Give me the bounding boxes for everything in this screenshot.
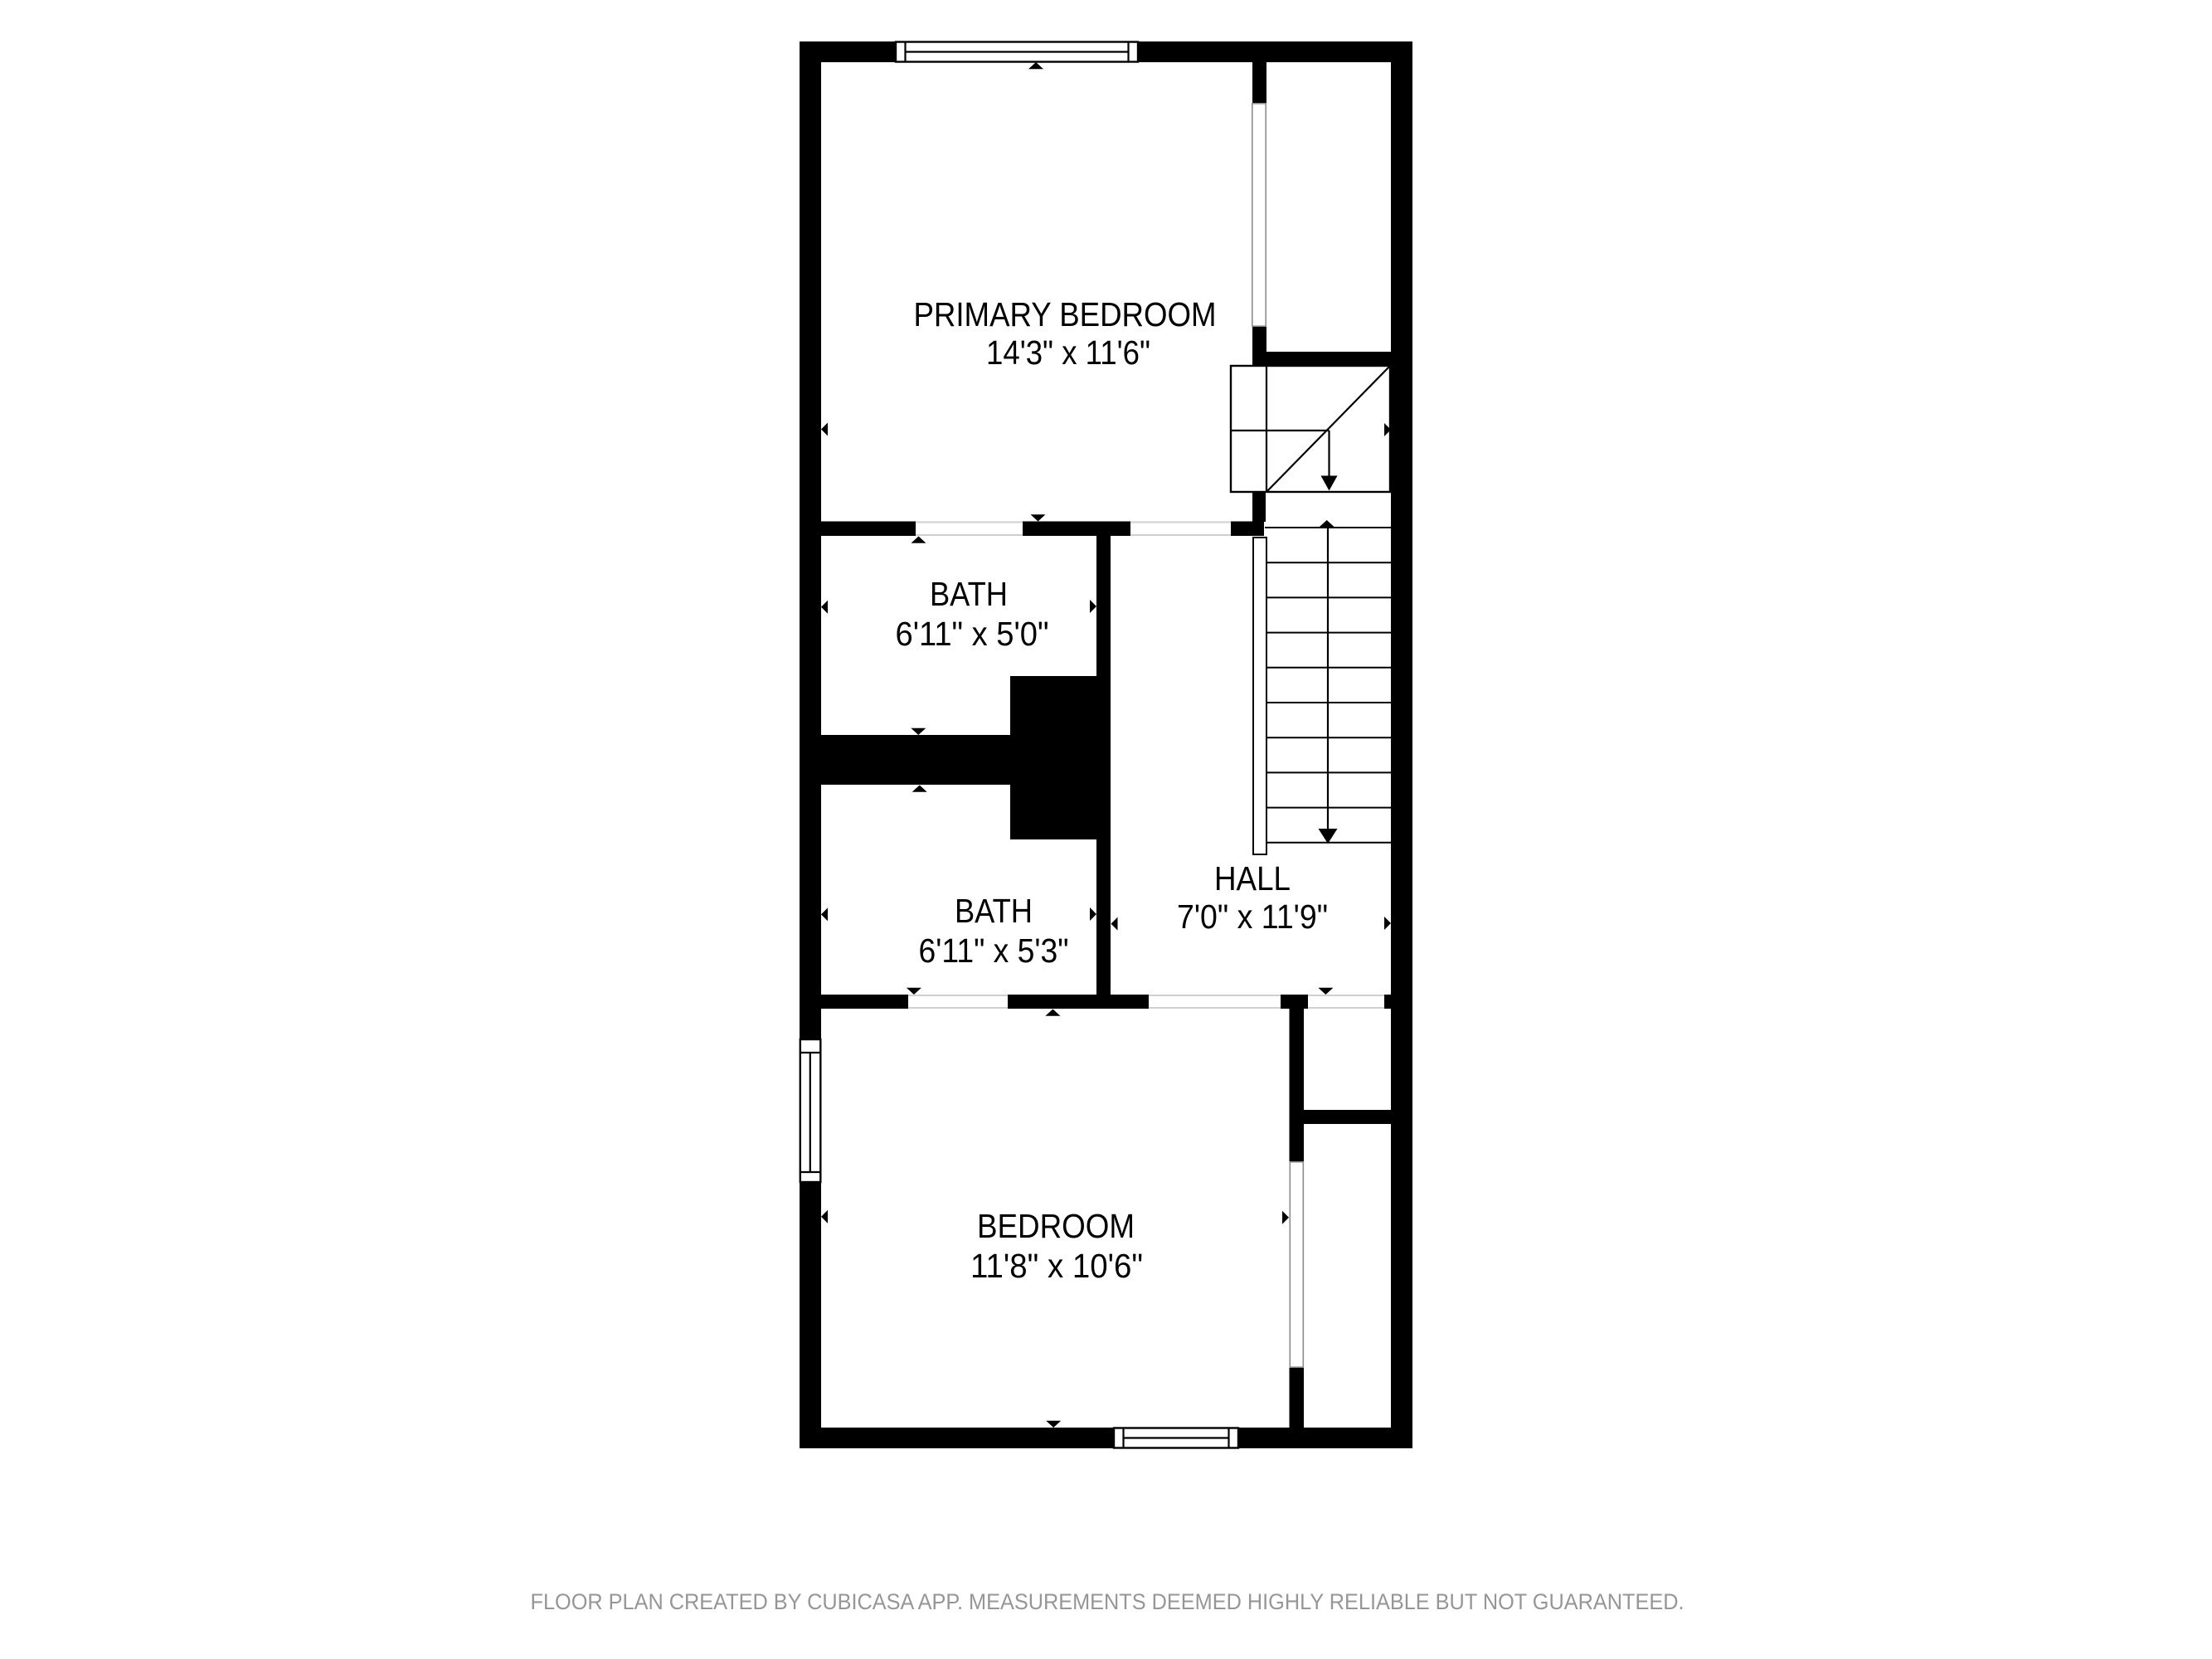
svg-text:BATH: BATH <box>930 575 1008 613</box>
svg-text:14'3" x 11'6": 14'3" x 11'6" <box>986 333 1150 372</box>
svg-text:11'8" x 10'6": 11'8" x 10'6" <box>970 1247 1143 1285</box>
svg-text:6'11" x 5'3": 6'11" x 5'3" <box>919 932 1069 970</box>
svg-text:FLOOR PLAN CREATED BY CUBICASA: FLOOR PLAN CREATED BY CUBICASA APP. MEAS… <box>531 1589 1685 1614</box>
svg-text:6'11" x 5'0": 6'11" x 5'0" <box>896 615 1049 653</box>
svg-text:7'0" x 11'9": 7'0" x 11'9" <box>1177 898 1328 936</box>
svg-text:BATH: BATH <box>955 892 1033 930</box>
svg-text:HALL: HALL <box>1214 859 1291 898</box>
svg-text:PRIMARY BEDROOM: PRIMARY BEDROOM <box>914 295 1217 333</box>
svg-text:BEDROOM: BEDROOM <box>977 1207 1135 1245</box>
